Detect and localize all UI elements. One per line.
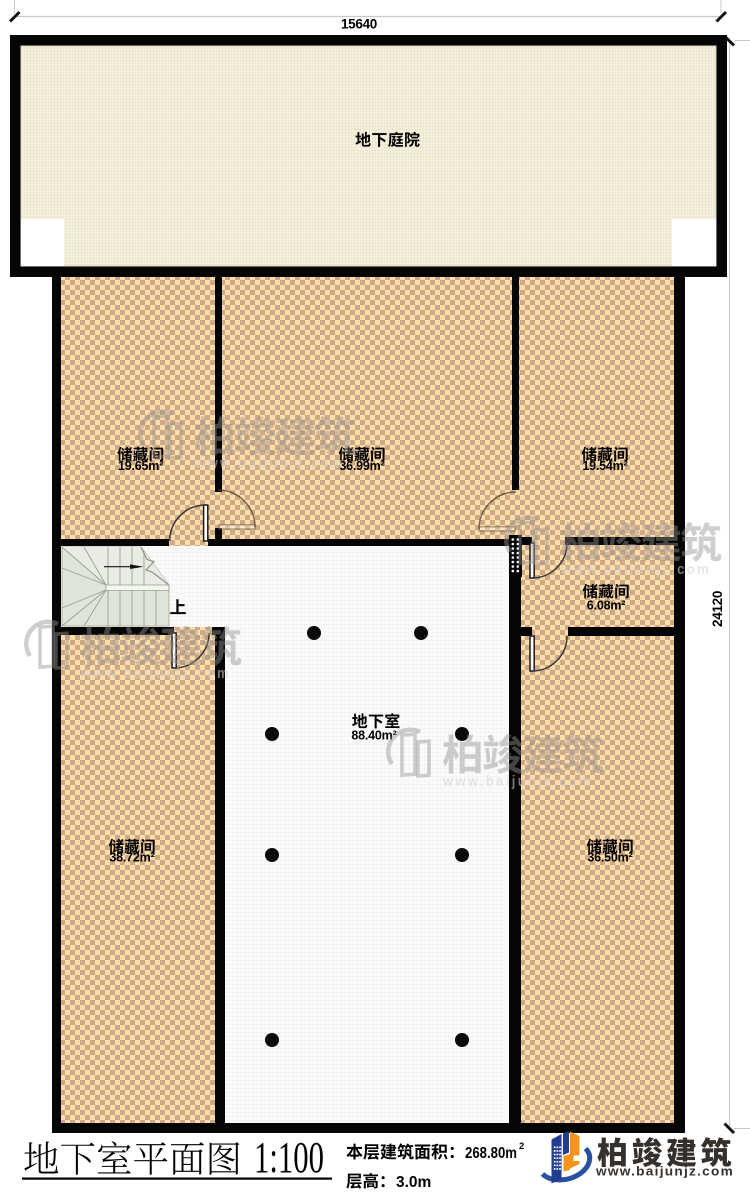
svg-text:www.baijunjz.com: www.baijunjz.com <box>80 666 231 682</box>
svg-text:www.baijunjz.com: www.baijunjz.com <box>595 1164 734 1179</box>
svg-text:19.54m²: 19.54m² <box>582 459 627 473</box>
svg-text:268.80m: 268.80m <box>465 1145 517 1162</box>
svg-text:3.0m: 3.0m <box>396 1174 431 1191</box>
svg-text:38.72m²: 38.72m² <box>109 851 154 865</box>
svg-text:www.baijunjz.com: www.baijunjz.com <box>442 774 593 790</box>
svg-text:15640: 15640 <box>341 17 377 32</box>
svg-text:2: 2 <box>519 1141 524 1152</box>
svg-text:36.99m²: 36.99m² <box>339 459 384 473</box>
svg-text:1:100: 1:100 <box>254 1133 324 1182</box>
svg-text:24120: 24120 <box>710 591 725 627</box>
svg-text:www.baijunjz.com: www.baijunjz.com <box>560 562 711 578</box>
svg-text:6.08m²: 6.08m² <box>587 599 625 613</box>
svg-text:www.baijunjz.com: www.baijunjz.com <box>194 456 345 472</box>
svg-text:19.65m²: 19.65m² <box>118 459 163 473</box>
svg-text:36.50m²: 36.50m² <box>587 851 632 865</box>
